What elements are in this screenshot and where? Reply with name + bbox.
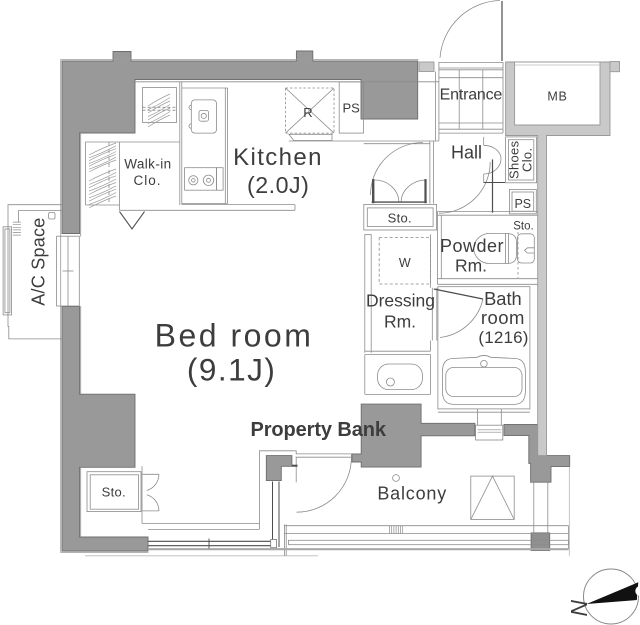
svg-text:room: room	[481, 307, 525, 328]
svg-text:A/C Space: A/C Space	[29, 217, 49, 305]
svg-text:MB: MB	[547, 90, 567, 104]
svg-text:(2.0J): (2.0J)	[247, 172, 309, 198]
svg-text:Kitchen: Kitchen	[233, 144, 323, 171]
svg-text:N: N	[566, 599, 592, 616]
svg-text:Property Bank: Property Bank	[251, 419, 387, 441]
svg-text:Sto.: Sto.	[102, 485, 126, 500]
svg-text:PS: PS	[514, 197, 531, 211]
svg-text:Powder: Powder	[440, 236, 504, 256]
svg-text:Balcony: Balcony	[377, 484, 447, 504]
svg-text:Clo.: Clo.	[520, 148, 535, 172]
svg-text:Entrance: Entrance	[440, 86, 503, 103]
svg-text:Hall: Hall	[451, 142, 482, 162]
svg-text:Clo.: Clo.	[133, 173, 161, 188]
svg-text:Rm.: Rm.	[384, 312, 416, 332]
svg-text:Walk-in: Walk-in	[124, 157, 171, 172]
svg-text:Bed room: Bed room	[155, 318, 314, 354]
svg-text:(9.1J): (9.1J)	[187, 352, 277, 388]
svg-text:Bath: Bath	[484, 288, 522, 309]
svg-text:R: R	[303, 105, 312, 120]
svg-text:Sto.: Sto.	[513, 221, 533, 233]
svg-text:W: W	[399, 256, 411, 270]
svg-text:PS: PS	[343, 101, 361, 116]
svg-text:Dressing: Dressing	[366, 291, 435, 311]
svg-text:Sto.: Sto.	[388, 211, 412, 226]
svg-text:(1216): (1216)	[478, 328, 528, 347]
svg-text:Rm.: Rm.	[455, 256, 487, 276]
